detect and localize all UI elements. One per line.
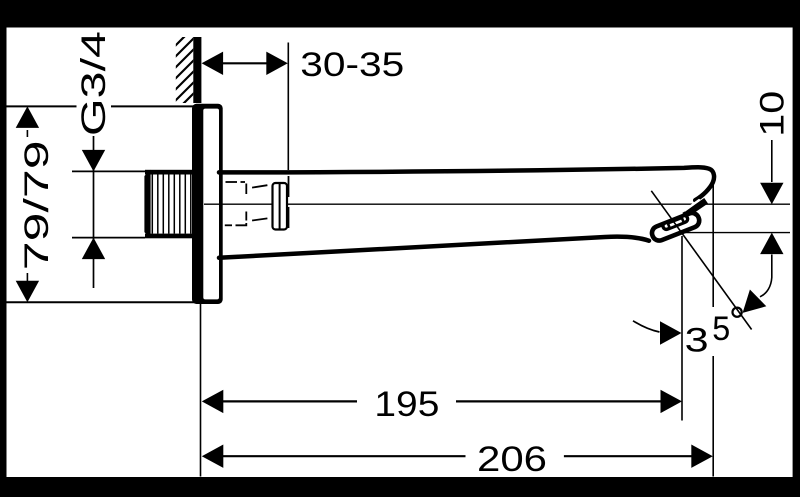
svg-text:30-35: 30-35	[300, 46, 404, 84]
svg-text:5: 5	[712, 310, 730, 348]
svg-text:3: 3	[685, 321, 709, 359]
svg-text:10: 10	[754, 91, 792, 137]
svg-text:79/79: 79/79	[18, 140, 56, 270]
svg-text:G3/4: G3/4	[75, 31, 113, 136]
svg-text:206: 206	[477, 439, 547, 479]
svg-text:195: 195	[374, 384, 439, 424]
